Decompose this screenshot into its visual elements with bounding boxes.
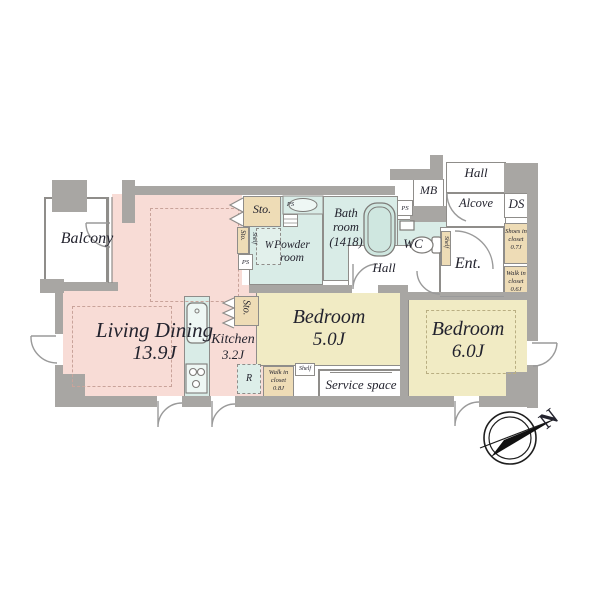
stove-icon xyxy=(186,364,207,393)
toilet-icon xyxy=(400,221,441,253)
washbasin-icon xyxy=(283,196,323,214)
folding-door-icons xyxy=(223,198,243,328)
bathtub-icon xyxy=(364,203,395,256)
floor-plan: N Balcony Living Dining 13.9J Kitchen 3.… xyxy=(0,0,602,613)
cabinet-lines xyxy=(284,219,297,223)
balcony-window-line xyxy=(109,197,113,283)
compass-icon xyxy=(480,412,553,464)
kitchen-sink-icon xyxy=(187,303,207,343)
plan-linework xyxy=(0,0,602,613)
service-window-line xyxy=(330,370,392,373)
door-arcs xyxy=(31,193,557,427)
